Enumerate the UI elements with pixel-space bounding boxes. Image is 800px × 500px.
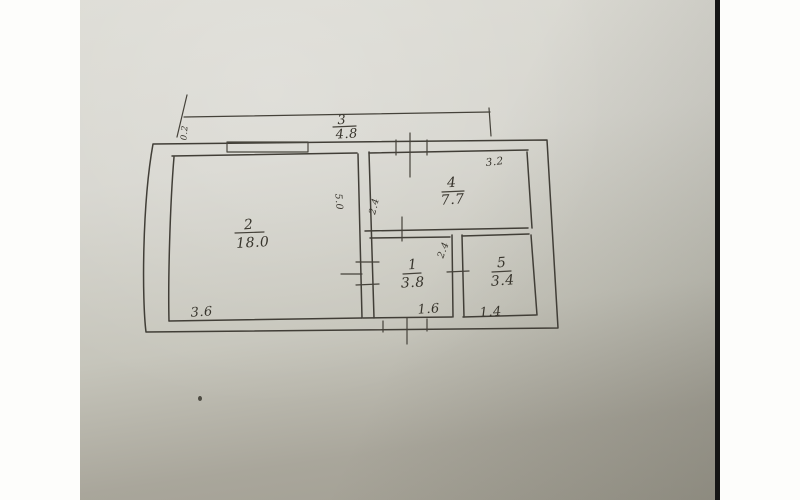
room1-top-wall (370, 237, 450, 238)
room4-number: 4 (446, 175, 457, 192)
room1-height-dim: 2.4 (435, 240, 451, 260)
room2-number: 2 (242, 217, 254, 234)
top-dimension-line (177, 95, 491, 137)
floor-plan-drawing: 3 4.8 0.2 2 18.0 3.6 5.0 4 7.7 3.2 2.4 1… (0, 0, 800, 500)
room5-number: 5 (496, 255, 507, 272)
room2-area: 18.0 (236, 234, 270, 252)
room4-area: 7.7 (440, 191, 465, 209)
room5-left-wall (462, 235, 464, 317)
room2-height-dim: 5.0 (332, 193, 344, 210)
room1-width-dim: 1.6 (417, 301, 440, 318)
room5-top-wall (462, 234, 529, 236)
room4-bottom-wall (365, 228, 528, 231)
room4-height-dim: 2.4 (367, 197, 382, 217)
room2-left-wall (169, 157, 174, 321)
screenshot-root: 3 4.8 0.2 2 18.0 3.6 5.0 4 7.7 3.2 2.4 1… (0, 0, 800, 500)
labels: 3 4.8 0.2 2 18.0 3.6 5.0 4 7.7 3.2 2.4 1… (179, 113, 515, 321)
top-dim-number: 3 (337, 113, 347, 128)
room4-top-wall (369, 150, 528, 153)
room1-number: 1 (407, 257, 418, 274)
room5-wall-tick (447, 271, 469, 272)
room2-door-tick-lower (356, 284, 379, 285)
room1-right-wall (452, 235, 453, 317)
room5-right-wall (531, 235, 537, 315)
outer-wall (144, 140, 558, 332)
room2-right-wall (358, 154, 362, 318)
room5-width-dim: 1.4 (479, 304, 502, 321)
top-dim-value: 4.8 (334, 126, 358, 142)
room2-top-wall (172, 153, 357, 156)
room2-width-dim: 3.6 (190, 304, 213, 321)
room5-area: 3.4 (490, 272, 515, 290)
offset-dim: 0.2 (179, 125, 190, 141)
partition-wall (369, 152, 374, 318)
room4-right-wall (527, 152, 532, 228)
room1-area: 3.8 (401, 274, 426, 291)
room4-width-dim: 3.2 (485, 155, 504, 169)
